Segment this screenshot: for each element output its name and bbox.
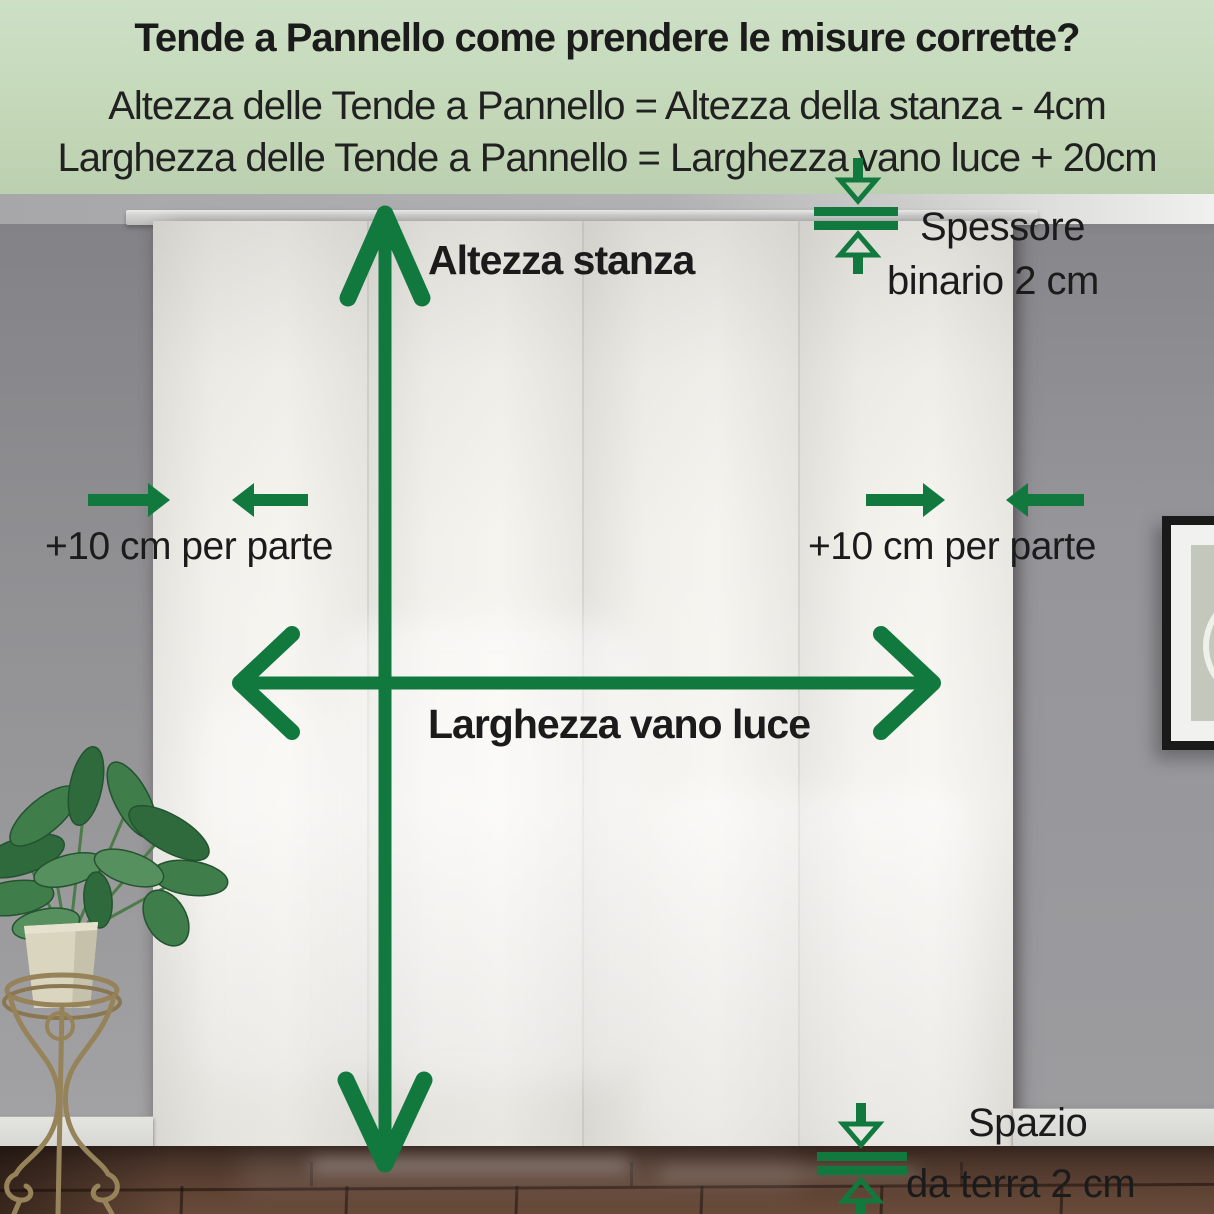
picture-frame	[1162, 516, 1214, 750]
rail-thickness-label-line2: binario 2 cm	[887, 260, 1099, 303]
frame-artwork	[1191, 545, 1214, 721]
potted-plant	[0, 728, 230, 1214]
curtain-panel	[798, 221, 1014, 1164]
width-formula: Larghezza delle Tende a Pannello = Largh…	[0, 136, 1214, 181]
right-allowance-label: +10 cm per parte	[808, 526, 1096, 568]
rail-thickness-label-line1: Spessore	[920, 206, 1085, 249]
plant-pot	[24, 922, 98, 1008]
artwork-circle	[1203, 590, 1214, 702]
left-allowance-label: +10 cm per parte	[45, 526, 333, 568]
plant-stand	[4, 975, 120, 1214]
curtain-panel	[367, 221, 583, 1164]
page-title: Tende a Pannello come prendere le misure…	[0, 16, 1214, 61]
frame-mat	[1171, 525, 1214, 741]
room-height-label: Altezza stanza	[428, 238, 694, 282]
infographic-canvas: Tende a Pannello come prendere le misure…	[0, 0, 1214, 1214]
header-band: Tende a Pannello come prendere le misure…	[0, 0, 1214, 194]
panel-curtains	[153, 221, 1013, 1164]
curtain-panel	[582, 221, 798, 1164]
height-formula: Altezza delle Tende a Pannello = Altezza…	[0, 84, 1214, 129]
floor-clearance-label-line1: Spazio	[968, 1102, 1087, 1145]
opening-width-label: Larghezza vano luce	[428, 702, 810, 746]
floor-reflection	[240, 1156, 800, 1190]
plant-leaves	[0, 744, 230, 954]
floor-clearance-label-line2: da terra 2 cm	[906, 1163, 1135, 1206]
